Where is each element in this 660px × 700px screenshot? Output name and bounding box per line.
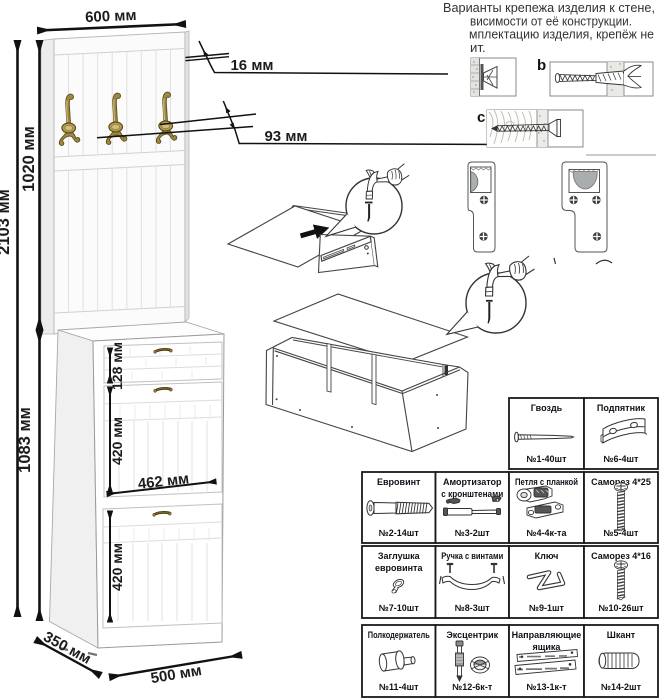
svg-text:Гвоздь: Гвоздь — [531, 403, 563, 413]
svg-text:№13-1к-т: №13-1к-т — [527, 682, 568, 692]
svg-text:420 мм: 420 мм — [109, 417, 125, 465]
svg-text:1083 мм: 1083 мм — [16, 407, 34, 473]
svg-text:евровинта: евровинта — [375, 563, 423, 573]
svg-text:1020 мм: 1020 мм — [20, 126, 38, 192]
svg-text:128 мм: 128 мм — [109, 342, 125, 390]
svg-text:Саморез 4*16: Саморез 4*16 — [591, 551, 651, 561]
svg-text:600 мм: 600 мм — [85, 7, 137, 26]
svg-text:№10-26шт: №10-26шт — [599, 603, 645, 613]
svg-text:ит.: ит. — [470, 40, 486, 55]
svg-text:№4-4к-та: №4-4к-та — [527, 528, 568, 538]
svg-text:№7-10шт: №7-10шт — [379, 603, 420, 613]
svg-text:Заглушка: Заглушка — [378, 551, 421, 561]
svg-text:№2-14шт: №2-14шт — [379, 528, 420, 538]
svg-text:Петля с планкой: Петля с планкой — [515, 477, 578, 487]
svg-text:Ключ: Ключ — [535, 551, 559, 561]
svg-text:c: c — [477, 109, 485, 126]
svg-text:93 мм: 93 мм — [264, 128, 307, 145]
svg-text:420 мм: 420 мм — [109, 543, 125, 591]
svg-text:№6-4шт: №6-4шт — [604, 454, 640, 464]
svg-text:2103 мм: 2103 мм — [0, 189, 13, 255]
svg-text:Подпятник: Подпятник — [597, 403, 646, 413]
svg-text:ящика: ящика — [533, 642, 562, 652]
svg-text:№1-40шт: №1-40шт — [527, 454, 568, 464]
svg-text:Амортизатор: Амортизатор — [443, 477, 502, 487]
svg-text:№11-4шт: №11-4шт — [379, 682, 419, 692]
svg-text:№12-6к-т: №12-6к-т — [452, 682, 493, 692]
svg-text:16 мм: 16 мм — [230, 57, 273, 74]
svg-text:Евровинт: Евровинт — [377, 477, 421, 487]
svg-text:Эксцентрик: Эксцентрик — [446, 630, 498, 640]
svg-text:Направляющие: Направляющие — [512, 630, 582, 640]
svg-text:№3-2шт: №3-2шт — [455, 528, 491, 538]
svg-text:Ручка с винтами: Ручка с винтами — [441, 551, 503, 561]
svg-text:№9-1шт: №9-1шт — [529, 603, 565, 613]
svg-text:b: b — [537, 57, 546, 74]
svg-text:Полкодержатель: Полкодержатель — [368, 630, 430, 640]
svg-text:мплектацию изделия, крепёж не: мплектацию изделия, крепёж не — [469, 27, 654, 42]
svg-text:№14-2шт: №14-2шт — [601, 682, 642, 692]
svg-text:№8-3шт: №8-3шт — [455, 603, 491, 613]
svg-text:Шкант: Шкант — [607, 630, 636, 640]
